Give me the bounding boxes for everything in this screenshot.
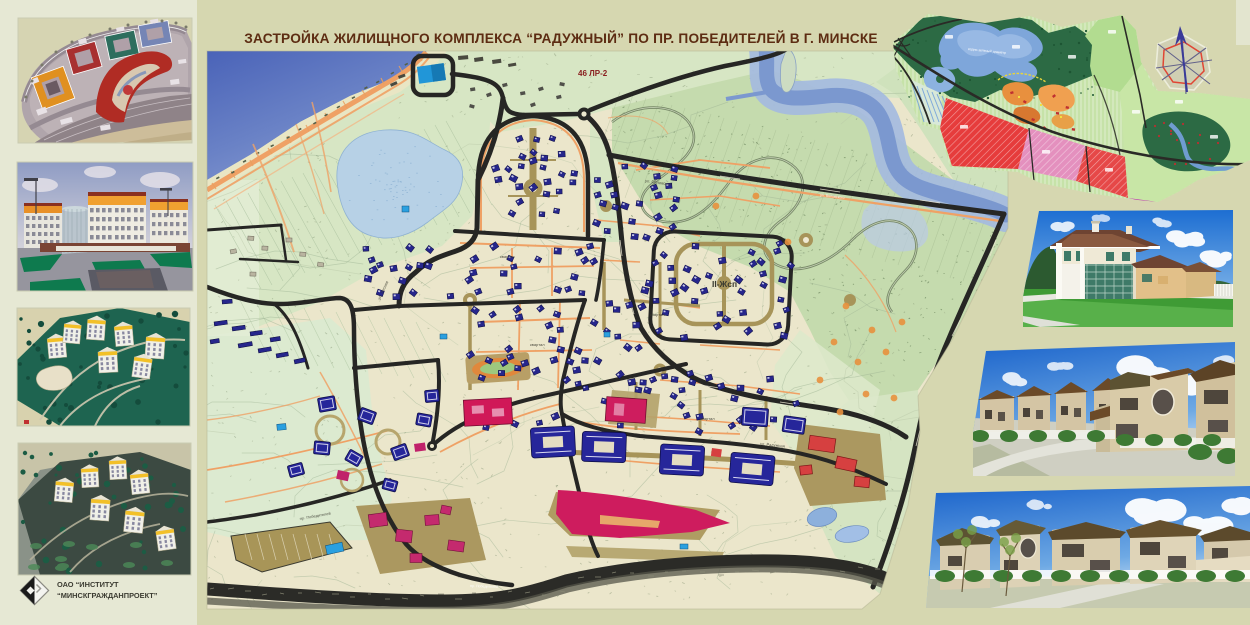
svg-text:квартал: квартал bbox=[530, 342, 545, 347]
svg-text:квартал: квартал bbox=[500, 254, 515, 259]
svg-text:квартал: квартал bbox=[700, 416, 715, 421]
svg-text:II-Жсп: II-Жсп bbox=[712, 279, 737, 289]
svg-text:ОАО “ИНСТИТУТ: ОАО “ИНСТИТУТ bbox=[57, 580, 119, 589]
svg-text:46 ЛР-2: 46 ЛР-2 bbox=[578, 69, 608, 78]
svg-text:квартал: квартал bbox=[650, 312, 665, 317]
svg-text:“МИНСКГРАЖДАНПРОЕКТ”: “МИНСКГРАЖДАНПРОЕКТ” bbox=[57, 591, 158, 600]
svg-text:ЗАСТРОЙКА ЖИЛИЩНОГО КОМПЛЕКСА: ЗАСТРОЙКА ЖИЛИЩНОГО КОМПЛЕКСА “РАДУЖНЫЙ”… bbox=[244, 31, 878, 46]
